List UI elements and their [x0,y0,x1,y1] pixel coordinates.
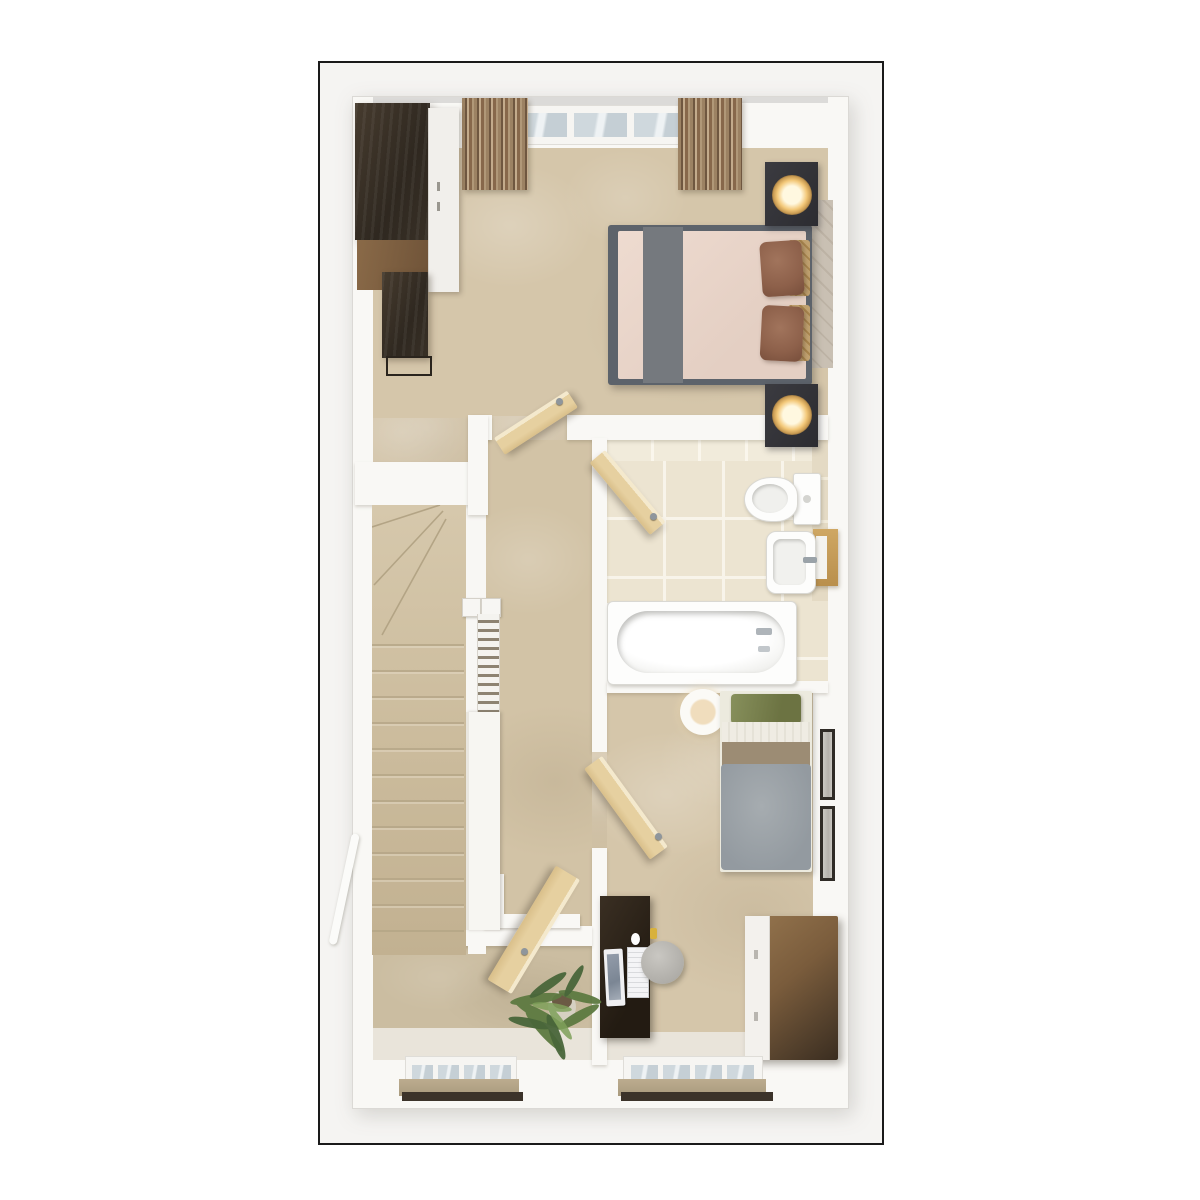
window-pane [438,1065,459,1080]
mouse [631,933,640,945]
basin-bowl [773,539,806,585]
stool [641,941,684,984]
toilet [744,477,798,522]
staircase [372,505,466,955]
door-handle [655,833,662,840]
wall-stub-foot [468,946,486,954]
single-bed [720,691,812,872]
bed-sheet [722,722,810,744]
master-bedroom-floor-ext [372,418,470,466]
basin-tap [803,557,817,563]
window-pane [631,1065,658,1080]
sideboard [745,916,838,1060]
hallway-window-sill-edge [402,1092,523,1101]
curtain-left [462,98,528,190]
wardrobe-handle [437,202,440,211]
desk-accessory [650,928,657,939]
bath-tap [756,628,772,635]
wardrobe-handle [437,182,440,191]
bath-tap [758,646,770,652]
bathtub-basin [617,611,785,673]
picture-art [823,732,832,797]
door-handle [650,513,657,520]
wall-stairwell-north [355,462,469,505]
gray-duvet [721,764,811,870]
balustrade [477,614,500,714]
bed-tan-band [722,742,810,766]
bathtub [607,601,797,685]
landing-floor [486,436,592,930]
table-lamp [772,395,812,435]
table-lamp [772,175,812,215]
wardrobe-top [355,103,430,240]
bedroom2-window-sill-edge [621,1092,773,1101]
window-pane [464,1065,485,1080]
potted-plant [500,955,620,1070]
floor-plan-page [0,0,1200,1200]
wardrobe-front [428,108,459,292]
washbasin [766,531,816,594]
window-pane [574,113,627,137]
north-window-frame [505,105,702,145]
dresser [382,272,428,358]
wall-picture [820,806,835,881]
window-pane [727,1065,754,1080]
sideboard-front [745,916,770,1060]
toilet-bowl [752,484,788,513]
window-pane [695,1065,722,1080]
bed-runner [643,227,683,383]
sideboard-handle [754,1012,758,1021]
towels [816,536,827,579]
wall-landing-east-upper [592,438,607,752]
door-handle [521,948,528,955]
stair-half-wall [466,712,500,930]
wall-picture [820,729,835,800]
dresser-legs [386,356,432,376]
brown-pillow [760,305,805,362]
flush-button [803,495,811,503]
picture-art [823,809,832,878]
window-pane [412,1065,433,1080]
green-pillow [731,694,801,724]
sideboard-handle [754,950,758,959]
wall-stairwell-connector [468,415,488,515]
door-handle [556,398,563,405]
curtain-right [678,98,742,190]
stair-treads [372,505,466,955]
window-pane [663,1065,690,1080]
brown-pillow [759,240,805,298]
